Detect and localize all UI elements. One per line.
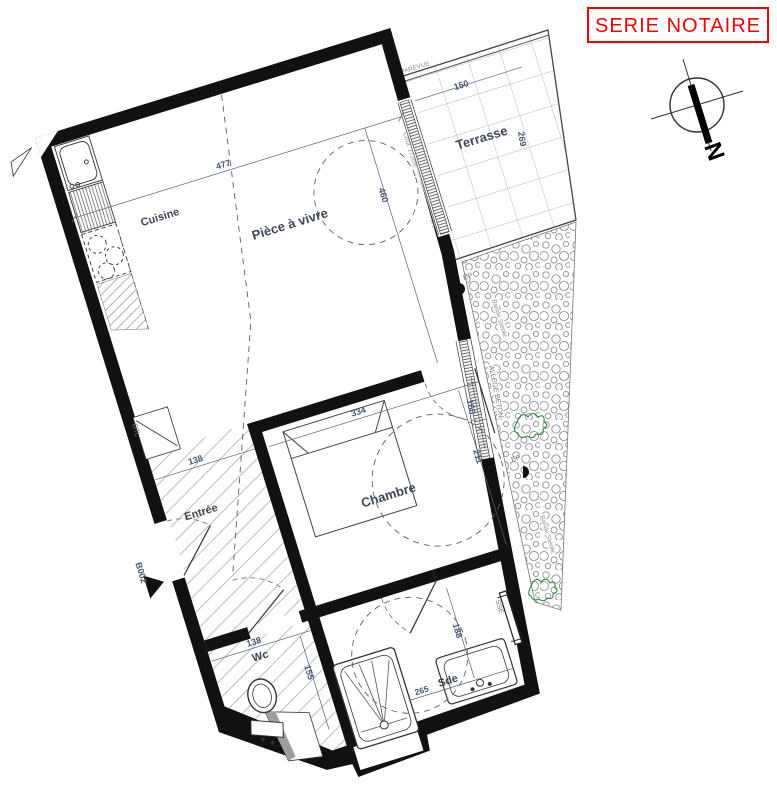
notary-stamp-label: SERIE NOTAIRE [595,15,761,37]
notary-stamp: SERIE NOTAIRE [588,8,768,42]
compass: N [651,59,743,164]
entry-door-ref: B002 [133,561,149,585]
compass-north-label: N [698,139,729,165]
floor-plan-page: PAREVUE 150 Terrasse 269 EP Bande Stéril… [0,0,777,800]
floor-plan-svg: PAREVUE 150 Terrasse 269 EP Bande Stéril… [0,0,777,800]
survey-tick [7,147,38,176]
compass-needle [691,85,709,143]
